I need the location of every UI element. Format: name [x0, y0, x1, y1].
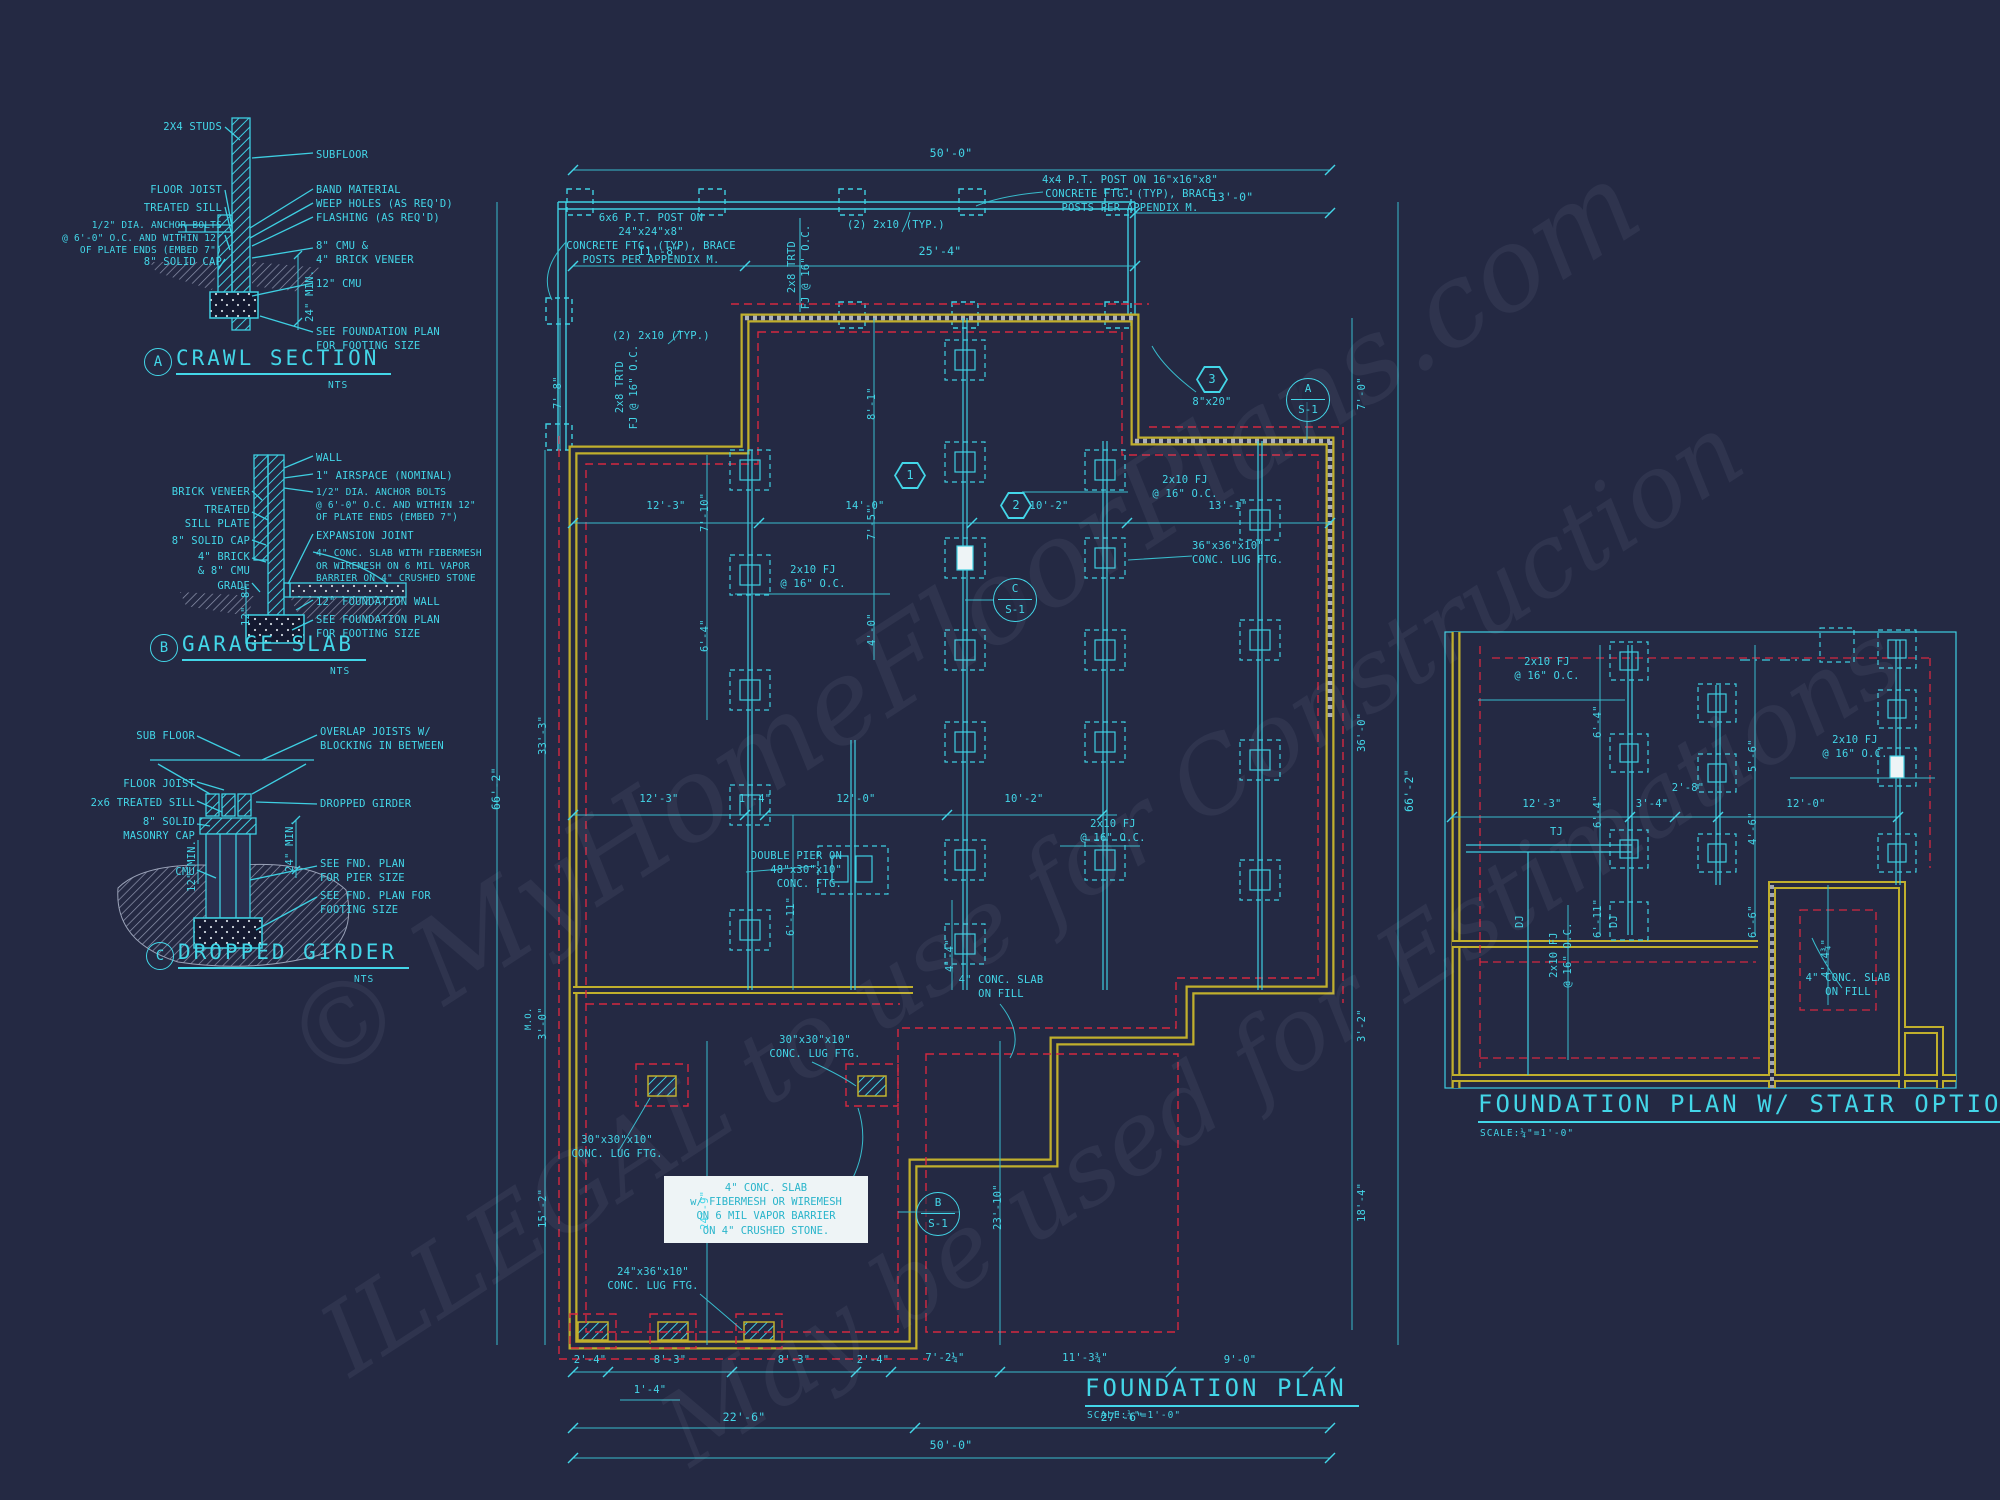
girder-label-pier-size: SEE FND. PLAN FOR PIER SIZE — [320, 858, 405, 886]
garage-label-wall: WALL — [316, 452, 342, 466]
girder-label-overlap: OVERLAP JOISTS W/ BLOCKING IN BETWEEN — [320, 726, 444, 754]
garage-detail-title: GARAGE SLAB — [182, 632, 366, 661]
main-plan-title: FOUNDATION PLAN — [1085, 1374, 1359, 1407]
note-2x10-typ-1: (2) 2x10 (TYP.) — [847, 219, 945, 233]
crawl-label-subfloor: SUBFLOOR — [316, 149, 368, 163]
dim-v8: 24'-9" — [699, 1191, 713, 1230]
dim-bottom2-0: 22'-6" — [714, 1410, 774, 1425]
garage-detail-marker: B — [150, 634, 178, 662]
note-lug36: 36"x36"x10" CONC. LUG FTG. — [1192, 540, 1283, 568]
stair-slab-fill: 4" CONC. SLAB ON FILL — [1786, 972, 1910, 1000]
dim-right-0: 7'-0" — [1356, 377, 1370, 410]
garage-dim-12: 12" — [240, 606, 254, 626]
dim-bottom1-4: 7'-2¼" — [910, 1352, 980, 1366]
note-lug30-1: 30"x30"x10" CONC. LUG FTG. — [750, 1034, 880, 1062]
dim-bottom1-2: 8'-3" — [764, 1354, 824, 1368]
crawl-label-studs: 2X4 STUDS — [72, 121, 222, 135]
crawl-label-solid-cap: 8" SOLID CAP — [72, 256, 222, 270]
dim-row1-3: 13'-1" — [1198, 500, 1258, 514]
dim-row2-3: 10'-2" — [994, 793, 1054, 807]
dim-bottom1-3: 2'-4" — [843, 1354, 903, 1368]
garage-detail-scale: NTS — [330, 666, 350, 677]
dim-top-left: 11'-8" — [629, 244, 689, 259]
dim-v2: 6'-4" — [699, 619, 713, 652]
stair-dim-colb-1: 4'-6" — [1747, 812, 1761, 845]
girder-detail-scale: NTS — [354, 974, 374, 985]
crawl-detail-title: CRAWL SECTION — [176, 346, 391, 375]
garage-label-expansion: EXPANSION JOINT — [316, 530, 414, 544]
garage-label-airspace: 1" AIRSPACE (NOMINAL) — [316, 470, 453, 484]
girder-dim-12min: 12" MIN. — [186, 840, 200, 892]
dim-left-overall: 66'-2" — [489, 767, 504, 810]
dim-top-mid: 25'-4" — [910, 244, 970, 259]
dim-right-overall: 66'-2" — [1402, 769, 1417, 812]
note-trtd-2: 2x8 TRTD FJ @ 16" O.C. — [614, 342, 642, 432]
stair-tj-label: TJ — [1550, 826, 1563, 840]
girder-label-treated-sill: 2x6 TREATED SILL — [45, 797, 195, 811]
stair-dim-cola-1: 6'-4" — [1592, 795, 1606, 828]
garage-dim-8: 8" — [240, 585, 254, 598]
crawl-label-band: BAND MATERIAL — [316, 184, 401, 198]
crawl-label-anchor-bolts: 1/2" DIA. ANCHOR BOLTS @ 6'-0" O.C. AND … — [40, 220, 222, 258]
stair-dim-row-1: 3'-4" — [1622, 798, 1682, 812]
crawl-label-flashing: FLASHING (AS REQ'D) — [316, 212, 440, 226]
dim-bottom-small: 1'-4" — [620, 1384, 680, 1398]
note-lug30-2: 30"x30"x10" CONC. LUG FTG. — [552, 1134, 682, 1162]
crawl-label-treated-sill: TREATED SILL — [72, 202, 222, 216]
stair-dim-stair: 4'-4¾" — [1820, 939, 1834, 978]
girder-detail-title: DROPPED GIRDER — [178, 940, 409, 969]
stair-dim-row-2: 2'-8" — [1658, 782, 1718, 796]
stair-dim-colb-0: 5'-6" — [1747, 739, 1761, 772]
girder-detail-marker: C — [146, 942, 174, 970]
crawl-label-floor-joist: FLOOR JOIST — [72, 184, 222, 198]
marker-section-a: AS-1 — [1286, 378, 1330, 422]
dim-right-1: 36'-0" — [1356, 713, 1370, 752]
dim-bottom1-0: 2'-4" — [560, 1354, 620, 1368]
dim-right-3: 18'-4" — [1356, 1183, 1370, 1222]
dim-v1: 7'-10" — [699, 493, 713, 532]
stair-fj-2: 2x10 FJ @ 16" O.C. — [1800, 734, 1910, 762]
crawl-label-cmu-brick: 8" CMU & 4" BRICK VENEER — [316, 240, 414, 268]
dim-right-2: 3'-2" — [1356, 1009, 1370, 1042]
garage-label-anchor-bolts: 1/2" DIA. ANCHOR BOLTS @ 6'-0" O.C. AND … — [316, 487, 476, 525]
garage-label-fnd-wall: 12" FOUNDATION WALL — [316, 596, 440, 610]
dim-v7: 4'-4" — [944, 939, 958, 972]
dim-v5: 4'-0" — [866, 613, 880, 646]
dim-bottom1-6: 9'-0" — [1210, 1354, 1270, 1368]
note-post-4x4: 4x4 P.T. POST ON 16"x16"x8" CONCRETE FTG… — [1040, 174, 1220, 216]
girder-label-footing-size: SEE FND. PLAN FOR FOOTING SIZE — [320, 890, 431, 918]
stair-plan-title: FOUNDATION PLAN W/ STAIR OPTION — [1478, 1090, 2000, 1123]
dim-top-overall: 50'-0" — [921, 146, 981, 161]
stair-fj-1: 2x10 FJ @ 16" O.C. — [1492, 656, 1602, 684]
girder-label-cmu: CMU — [45, 866, 195, 880]
note-trtd-1: 2x8 TRTD FJ @ 16" O.C. — [786, 222, 814, 312]
crawl-detail-scale: NTS — [328, 380, 348, 391]
note-mo: M.O. — [524, 1008, 536, 1030]
note-slab-fill: 4" CONC. SLAB ON FILL — [946, 974, 1056, 1002]
dim-row1-0: 12'-3" — [636, 500, 696, 514]
note-fj-1: 2x10 FJ @ 16" O.C. — [758, 564, 868, 592]
dim-left-0: 7'-8" — [552, 376, 566, 409]
girder-label-masonry-cap: 8" SOLID MASONRY CAP — [45, 816, 195, 844]
dim-top-right: 13'-0" — [1202, 190, 1262, 205]
girder-dim-24min: 24" MIN. — [284, 820, 298, 872]
dim-left-3: 15'-2" — [537, 1189, 551, 1228]
dim-bottom-overall: 50'-0" — [921, 1438, 981, 1453]
main-plan-scale: SCALE:¼"=1'-0" — [1087, 1410, 1181, 1421]
dim-v6: 6'-11" — [785, 897, 799, 936]
dim-v9: 23'-10" — [992, 1184, 1006, 1230]
garage-label-slab: 4" CONC. SLAB WITH FIBERMESH OR WIREMESH… — [316, 548, 482, 586]
dropped-girder-drawing — [118, 735, 349, 966]
dim-v4: 7'-5" — [866, 507, 880, 540]
stair-plan-scale: SCALE:¼"=1'-0" — [1480, 1128, 1574, 1139]
note-lug24: 24"x36"x10" CONC. LUG FTG. — [588, 1266, 718, 1294]
crawl-dim-24min: 24" MIN. — [304, 270, 318, 322]
dim-row2-2: 12'-0" — [826, 793, 886, 807]
marker-hex-3-label: 8"x20" — [1172, 396, 1252, 410]
crawl-detail-marker: A — [144, 348, 172, 376]
stair-dim-row-3: 12'-0" — [1776, 798, 1836, 812]
note-fj-2: 2x10 FJ @ 16" O.C. — [1130, 474, 1240, 502]
garage-label-sill-plate: TREATED SILL PLATE — [100, 504, 250, 532]
stair-dim-cola-0: 6'-4" — [1592, 705, 1606, 738]
marker-section-b: BS-1 — [916, 1192, 960, 1236]
stair-dim-row-0: 12'-3" — [1512, 798, 1572, 812]
dim-row1-2: 10'-2" — [1019, 500, 1079, 514]
stair-dim-cola-2: 6'-11" — [1592, 899, 1606, 938]
garage-label-grade: GRADE — [100, 580, 250, 594]
garage-label-solid-cap: 8" SOLID CAP — [100, 535, 250, 549]
girder-label-floor-joist: FLOOR JOIST — [45, 778, 195, 792]
dim-row1-1: 14'-0" — [835, 500, 895, 514]
stair-dim-colb-2: 6'-6" — [1747, 905, 1761, 938]
girder-label-sub-floor: SUB FLOOR — [45, 730, 195, 744]
marker-section-c: CS-1 — [993, 578, 1037, 622]
note-double-pier: DOUBLE PIER ON 48"x30"x10" CONC. FTG. — [712, 850, 842, 892]
crawl-label-weep: WEEP HOLES (AS REQ'D) — [316, 198, 453, 212]
stair-dj-label-1: DJ — [1514, 915, 1528, 928]
girder-label-dropped: DROPPED GIRDER — [320, 798, 411, 812]
garage-label-brick-veneer: BRICK VENEER — [100, 486, 250, 500]
note-fj-3: 2x10 FJ @ 16" O.C. — [1058, 818, 1168, 846]
dim-row2-1: 1'-4" — [725, 793, 785, 807]
dim-bottom1-5: 11'-3¾" — [1050, 1352, 1120, 1366]
dim-row2-0: 12'-3" — [629, 793, 689, 807]
garage-label-brick-cmu: 4" BRICK & 8" CMU — [100, 551, 250, 579]
dim-bottom1-1: 8'-3" — [640, 1354, 700, 1368]
crawl-label-cmu12: 12" CMU — [316, 278, 362, 292]
stair-fj-vertical: 2x10 FJ @ 16" O.C. — [1548, 910, 1576, 1000]
stair-dj-label-2: DJ — [1608, 915, 1622, 928]
dim-v3: 8'-1" — [866, 387, 880, 420]
dim-left-2: 3'-0" — [537, 1007, 551, 1040]
dim-left-1: 33'-3" — [537, 716, 551, 755]
note-slab-spec-highlight: 4" CONC. SLAB w/ FIBERMESH OR WIREMESH O… — [664, 1176, 868, 1243]
blueprint-sheet: © MyHomeFloorPlans.com ILLEGAL to use fo… — [0, 0, 2000, 1500]
